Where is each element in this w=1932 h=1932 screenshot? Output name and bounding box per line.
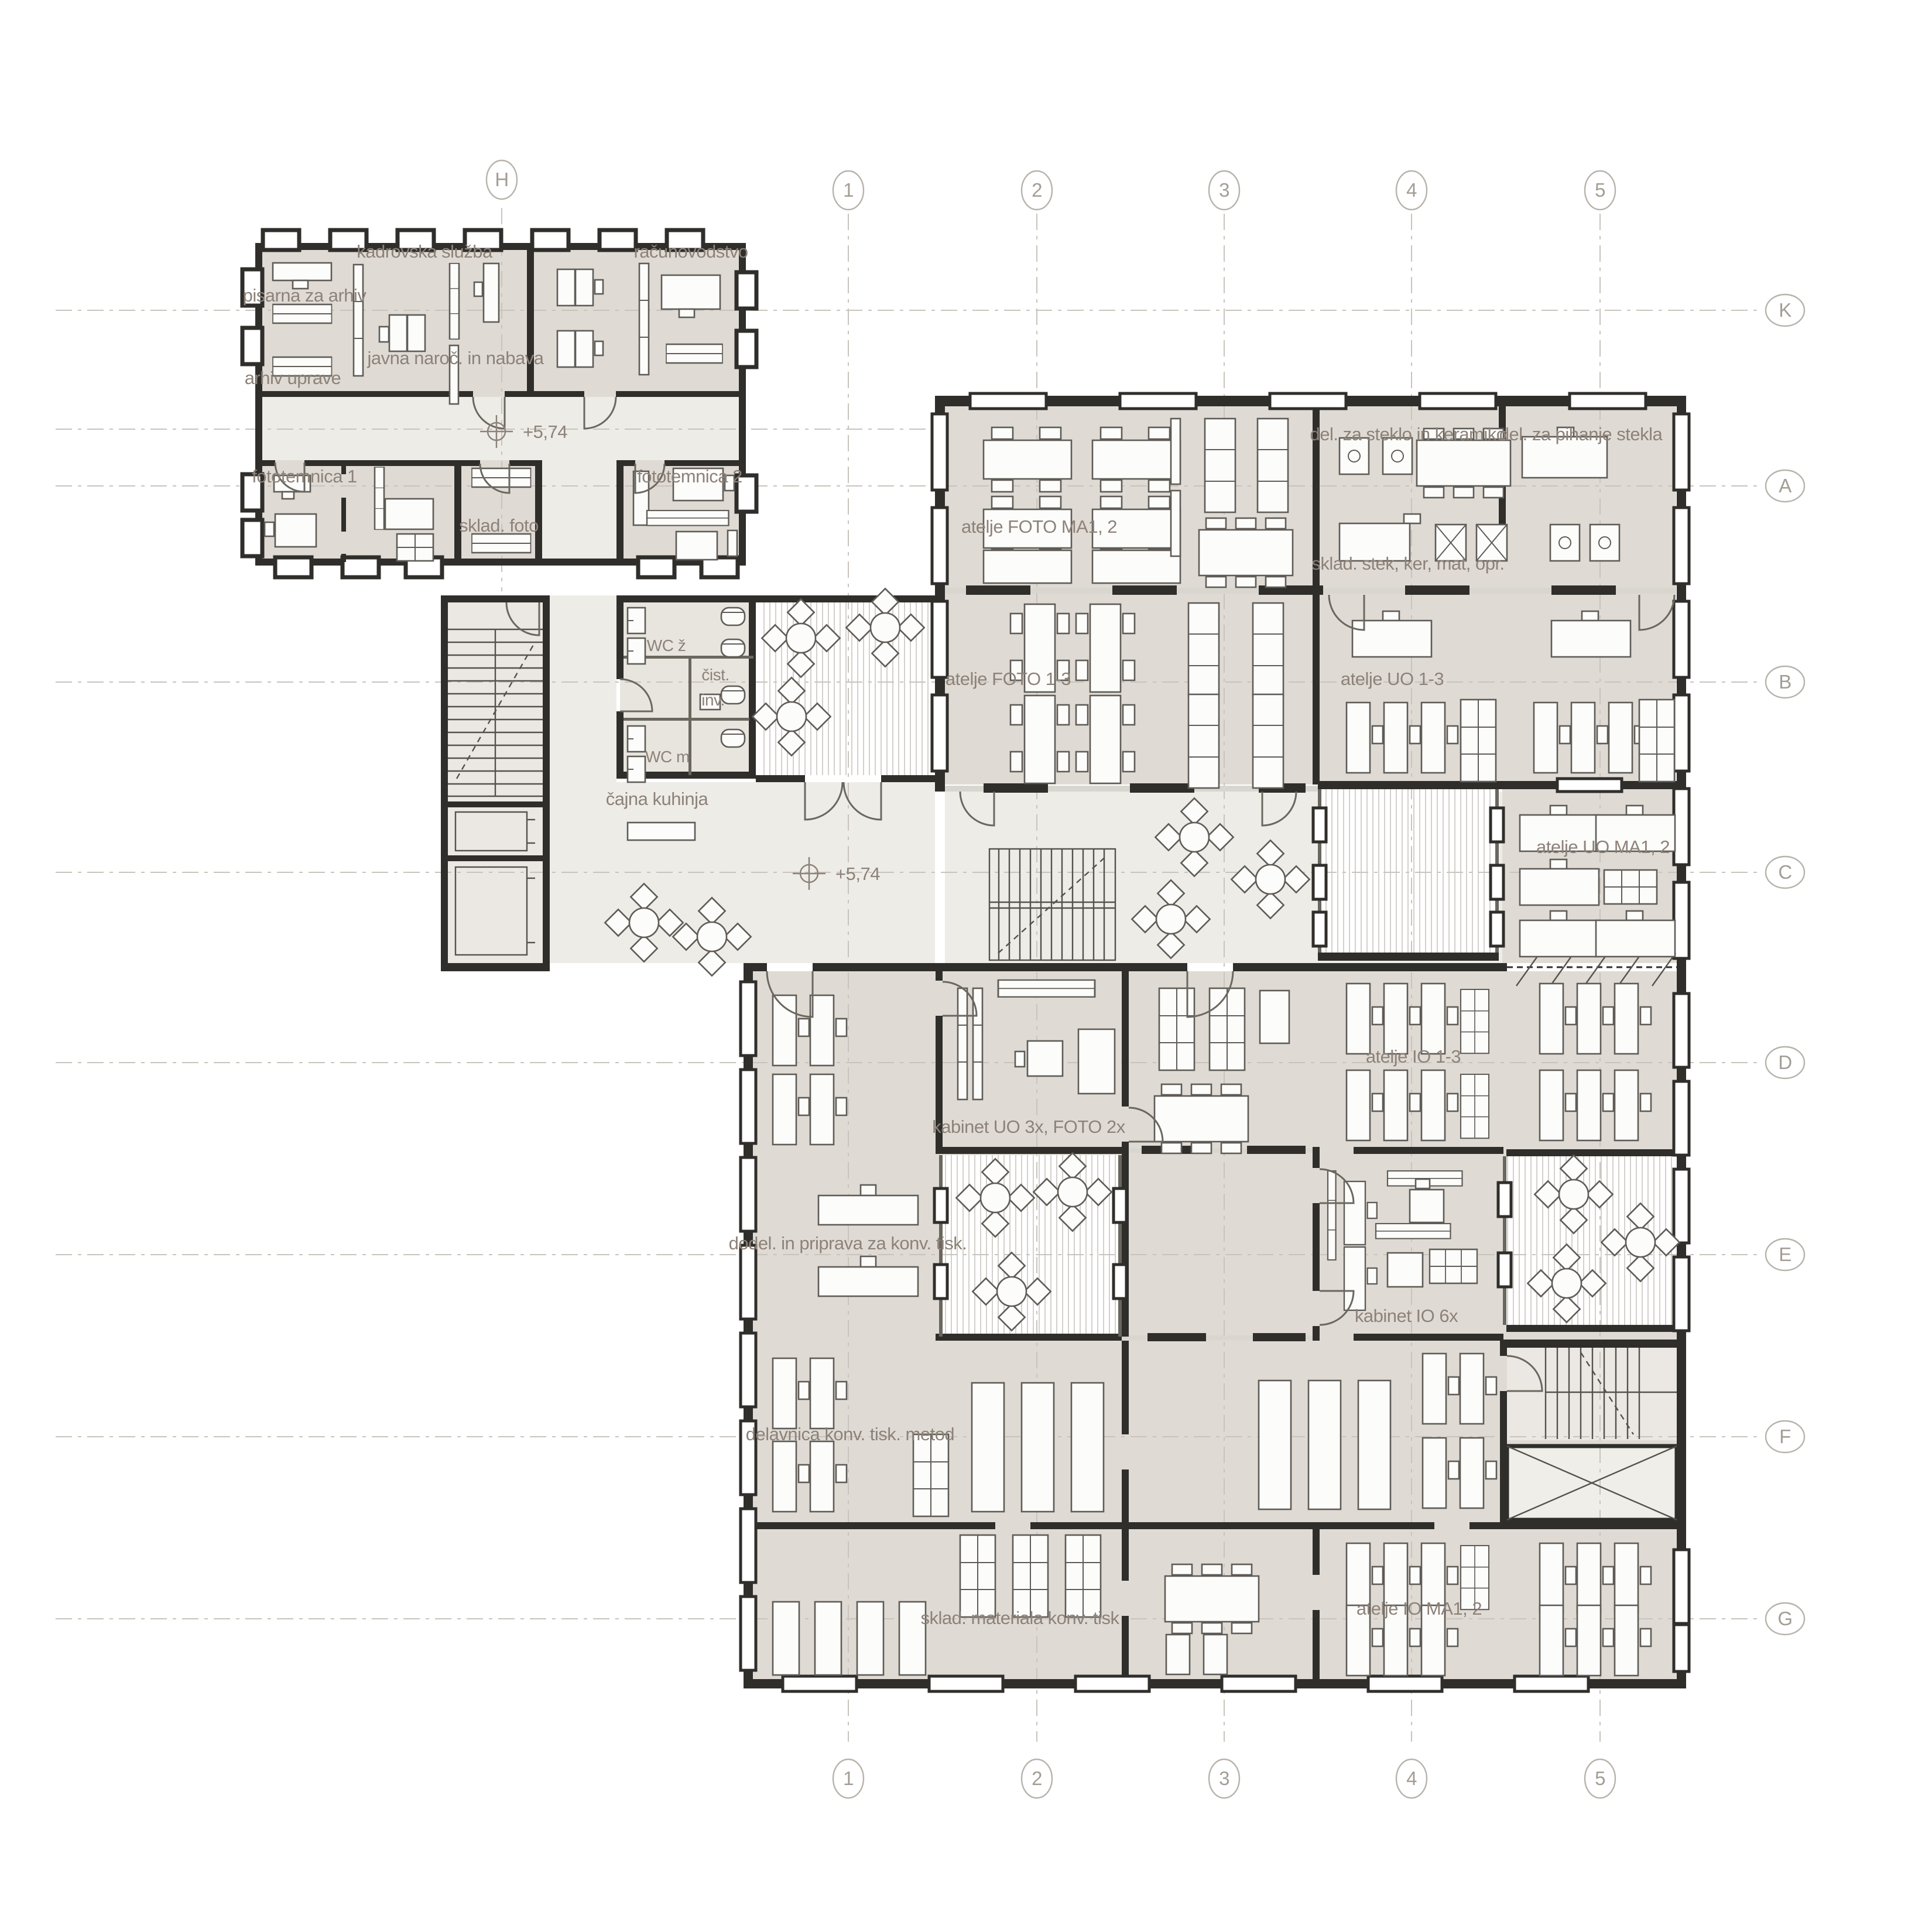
label-cajna-kuhinja: čajna kuhinja	[606, 789, 709, 809]
grid-bubble-bottom-1-text: 1	[843, 1767, 854, 1789]
label-atelje-foto-13: atelje FOTO 1-3	[946, 669, 1071, 689]
label-javna-naroc: javna naroč. in nabava	[367, 348, 544, 368]
grid-bubble-K-text: K	[1779, 299, 1791, 321]
label-sklad-foto: sklad. foto	[459, 515, 539, 536]
grid-bubble-B-text: B	[1779, 671, 1791, 693]
grid-bubble-A-text: A	[1779, 475, 1791, 496]
label-atelje-uo-ma12: atelje UO MA1, 2	[1536, 837, 1670, 857]
grid-bubble-bottom-5-text: 5	[1595, 1767, 1605, 1789]
label-atelje-uo-13: atelje UO 1-3	[1341, 669, 1444, 689]
label-wc-m: WC m	[645, 748, 690, 766]
label-racunovodstvo: računovodstvo	[633, 241, 748, 262]
level-text-1: +5,74	[523, 422, 567, 442]
label-arhiv-uprave: arhiv uprave	[245, 368, 341, 388]
grid-bubble-bottom-4-text: 4	[1406, 1767, 1417, 1789]
grid-bubble-C-text: C	[1778, 861, 1791, 883]
label-sklad-stek: sklad. stek, ker, mat, opr.	[1311, 553, 1504, 574]
furniture-cajna-kuhinja	[628, 823, 695, 840]
furniture-atelje-uo-ma12	[1520, 806, 1675, 957]
grid-bubble-D-text: D	[1778, 1051, 1791, 1073]
label-cist: čist.	[701, 666, 729, 684]
grid-bubble-top-2-text: 2	[1032, 179, 1042, 201]
label-wc-z: WC ž	[647, 636, 686, 655]
grid-bubble-G-text: G	[1777, 1608, 1792, 1629]
old-wing-corridor2-fill	[542, 460, 616, 562]
label-inv: inv.	[701, 691, 725, 709]
label-sklad-materiala: sklad. materiala konv. tisk	[920, 1608, 1119, 1628]
grid-bubble-top-5-text: 5	[1595, 179, 1605, 201]
label-pisarna-za-arhiv: pisarna za arhiv	[243, 285, 367, 306]
floor-plan-svg: +5,74 +5,74 kadrovska služba pisarna za …	[0, 0, 1932, 1932]
label-kabinet-uo: kabinet UO 3x, FOTO 2x	[932, 1116, 1126, 1137]
label-del-za-steklo: del. za steklo in keramiko	[1310, 424, 1506, 444]
sq-room-hatch	[1321, 789, 1495, 953]
grid-bubble-E-text: E	[1779, 1244, 1791, 1265]
grid-bubble-top-3-text: 3	[1219, 179, 1229, 201]
grid-bubble-top-4-text: 4	[1406, 179, 1417, 201]
label-atelje-foto-ma12: atelje FOTO MA1, 2	[961, 516, 1117, 537]
label-atelje-io-ma12: atelje IO MA1, 2	[1356, 1598, 1482, 1619]
label-kadrovska-sluzba: kadrovska služba	[357, 241, 493, 262]
grid-bubble-F-text: F	[1779, 1426, 1791, 1447]
label-dodel: dodel. in priprava za konv. tisk.	[729, 1233, 967, 1253]
label-atelje-io-13: atelje IO 1-3	[1366, 1046, 1461, 1067]
grid-bubble-top-1-text: 1	[843, 179, 854, 201]
label-del-za-pihanje: del. za pihanje stekla	[1499, 424, 1663, 444]
label-delavnica: delavnica konv. tisk. metod	[746, 1424, 954, 1444]
label-fototemnica-1: fototemnica 1	[252, 466, 357, 487]
label-kabinet-io: kabinet IO 6x	[1355, 1306, 1458, 1326]
grid-bubble-H-text: H	[495, 169, 508, 190]
level-text-2: +5,74	[835, 864, 880, 884]
grid-bubble-bottom-2-text: 2	[1032, 1767, 1042, 1789]
label-fototemnica-2: fototemnica 2	[637, 466, 742, 487]
grid-bubble-bottom-3-text: 3	[1219, 1767, 1229, 1789]
